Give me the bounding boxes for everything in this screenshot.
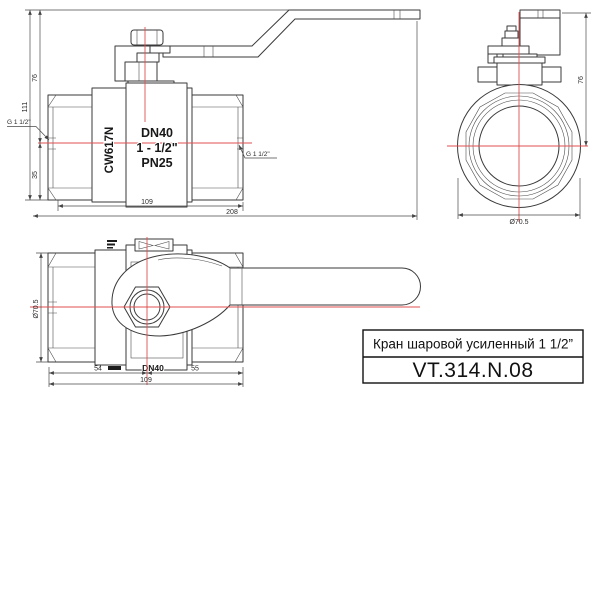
side-neck bbox=[497, 63, 542, 85]
top-dim-label-dia: Ø70.5 bbox=[33, 299, 40, 318]
stem-cap bbox=[131, 30, 163, 45]
top-view: DN40 Ø70.5 54 55 109 bbox=[30, 237, 421, 387]
stem-collar bbox=[137, 53, 159, 62]
side-tab-right bbox=[542, 67, 561, 82]
top-stem-thread bbox=[135, 239, 173, 251]
top-dim-label-54: 54 bbox=[94, 366, 102, 373]
side-stem-nut-top bbox=[507, 26, 516, 31]
dim-label-109: 109 bbox=[141, 199, 153, 206]
marking-dn: DN40 bbox=[141, 126, 173, 140]
side-handle-strip bbox=[520, 10, 560, 18]
dim-label-111: 111 bbox=[22, 102, 29, 113]
dim-label-208: 208 bbox=[226, 209, 238, 216]
side-view: 76 Ø70.5 bbox=[447, 10, 591, 226]
dim-label-35: 35 bbox=[32, 171, 39, 179]
cast-mark-top bbox=[107, 240, 117, 249]
cast-mark-bottom bbox=[108, 366, 121, 370]
thread-label-left: G 1 1/2" bbox=[7, 119, 31, 126]
side-bracket-plate bbox=[488, 46, 529, 54]
stem-gland bbox=[125, 62, 157, 81]
product-model: VT.314.N.08 bbox=[412, 359, 533, 382]
handle-bracket-step bbox=[150, 46, 170, 53]
marking-pn: PN25 bbox=[141, 156, 172, 170]
side-tab-left bbox=[478, 67, 497, 82]
side-flange bbox=[494, 57, 545, 63]
top-end-cap-left bbox=[48, 253, 95, 362]
title-block: Кран шаровой усиленный 1 1/2” VT.314.N.0… bbox=[363, 330, 583, 383]
marking-material: CW617N bbox=[104, 127, 116, 174]
side-dim-label-76: 76 bbox=[578, 76, 585, 84]
valve-technical-drawing: CW617N DN40 1 - 1/2" PN25 111 76 35 109 … bbox=[0, 0, 600, 600]
side-dim-label-dia: Ø70.5 bbox=[509, 219, 528, 226]
top-dim-label-55: 55 bbox=[191, 366, 199, 373]
marking-size: 1 - 1/2" bbox=[136, 141, 177, 155]
side-stem-nut-mid bbox=[505, 31, 518, 38]
handle-outline bbox=[150, 10, 420, 57]
dim-label-76: 76 bbox=[32, 74, 39, 82]
top-dim-label-109: 109 bbox=[140, 377, 152, 384]
thread-label-right: G 1 1/2" bbox=[246, 151, 270, 158]
product-title: Кран шаровой усиленный 1 1/2” bbox=[373, 337, 573, 352]
valve-technical-drawing-page: CW617N DN40 1 - 1/2" PN25 111 76 35 109 … bbox=[0, 0, 600, 600]
front-view: CW617N DN40 1 - 1/2" PN25 111 76 35 109 … bbox=[7, 10, 420, 220]
end-cap-left bbox=[48, 95, 92, 200]
end-cap-right bbox=[192, 95, 243, 200]
thread-leader-left bbox=[7, 127, 49, 141]
top-marking-dn: DN40 bbox=[142, 363, 164, 373]
